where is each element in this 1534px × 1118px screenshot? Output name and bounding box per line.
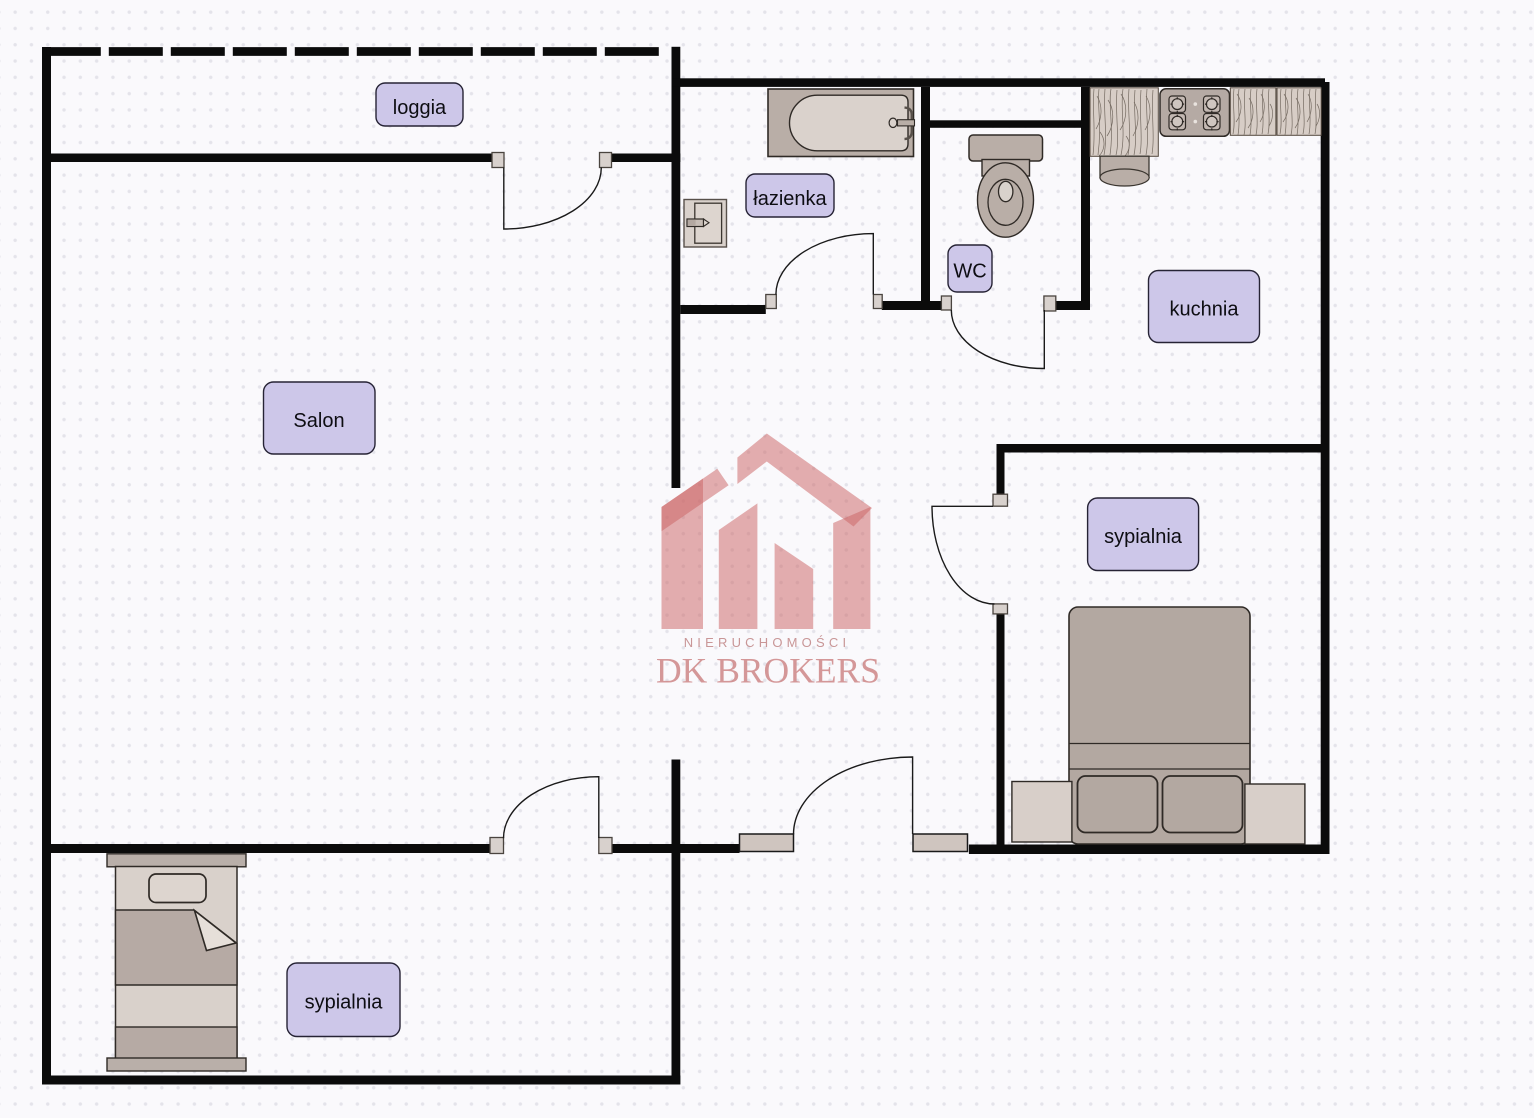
svg-text:kuchnia: kuchnia xyxy=(1170,299,1240,321)
svg-text:Salon: Salon xyxy=(293,410,344,432)
svg-text:WC: WC xyxy=(953,261,986,283)
svg-text:łazienka: łazienka xyxy=(753,188,827,210)
svg-text:NIERUCHOMOŚCI: NIERUCHOMOŚCI xyxy=(684,635,851,650)
svg-text:DK BROKERS: DK BROKERS xyxy=(656,651,880,691)
svg-text:loggia: loggia xyxy=(393,97,447,119)
svg-text:sypialnia: sypialnia xyxy=(305,992,384,1014)
svg-text:sypialnia: sypialnia xyxy=(1104,526,1183,548)
